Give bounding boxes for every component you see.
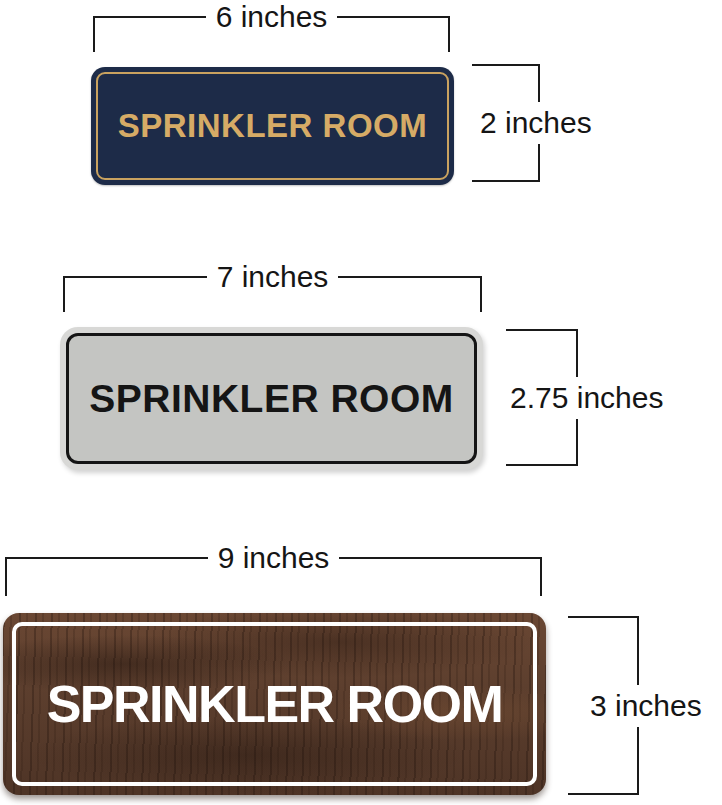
dim-line-segment [338, 276, 482, 278]
dim-end-tick [5, 558, 7, 596]
sign-navy-plate: SPRINKLER ROOM [91, 67, 454, 185]
dim-line-segment [339, 557, 542, 559]
dim-end-tick [540, 558, 542, 596]
dim-end-tick [448, 17, 450, 52]
height-dimension-silver: 2.75 inches [502, 329, 722, 466]
dim-line-segment [63, 276, 207, 278]
dim-end-tick [480, 277, 482, 312]
dim-line-segment [93, 16, 206, 18]
dim-end-tick [93, 17, 95, 52]
width-dimension-silver: 7 inches [63, 260, 482, 294]
width-dimension-navy: 6 inches [93, 0, 450, 34]
height-dimension-wood: 3 inches [568, 616, 722, 795]
dim-corner-tick [472, 64, 540, 66]
dim-corner-tick [506, 329, 578, 331]
dim-end-tick [63, 277, 65, 312]
canvas: 6 inches SPRINKLER ROOM 2 inches 7 inche… [0, 0, 722, 805]
width-dimension-label-silver: 7 inches [207, 260, 339, 294]
dim-corner-tick [472, 180, 540, 182]
dim-corner-tick [506, 464, 578, 466]
width-dimension-label-navy: 6 inches [206, 0, 338, 34]
width-dimension-wood: 9 inches [5, 541, 542, 575]
sign-wood-plate: SPRINKLER ROOM [3, 613, 546, 795]
height-dimension-label-wood: 3 inches [582, 685, 710, 727]
sign-silver-text: SPRINKLER ROOM [89, 377, 454, 421]
dim-line-segment [337, 16, 450, 18]
dim-corner-tick [568, 793, 639, 795]
height-dimension-label-silver: 2.75 inches [502, 377, 671, 419]
dim-corner-tick [568, 616, 639, 618]
sign-navy-text: SPRINKLER ROOM [118, 107, 428, 145]
sign-silver-frame: SPRINKLER ROOM [60, 327, 483, 470]
height-dimension-navy: 2 inches [472, 64, 708, 182]
dim-line-segment [5, 557, 208, 559]
sign-wood-text: SPRINKLER ROOM [47, 674, 503, 734]
height-dimension-label-navy: 2 inches [472, 102, 600, 144]
width-dimension-label-wood: 9 inches [208, 541, 340, 575]
